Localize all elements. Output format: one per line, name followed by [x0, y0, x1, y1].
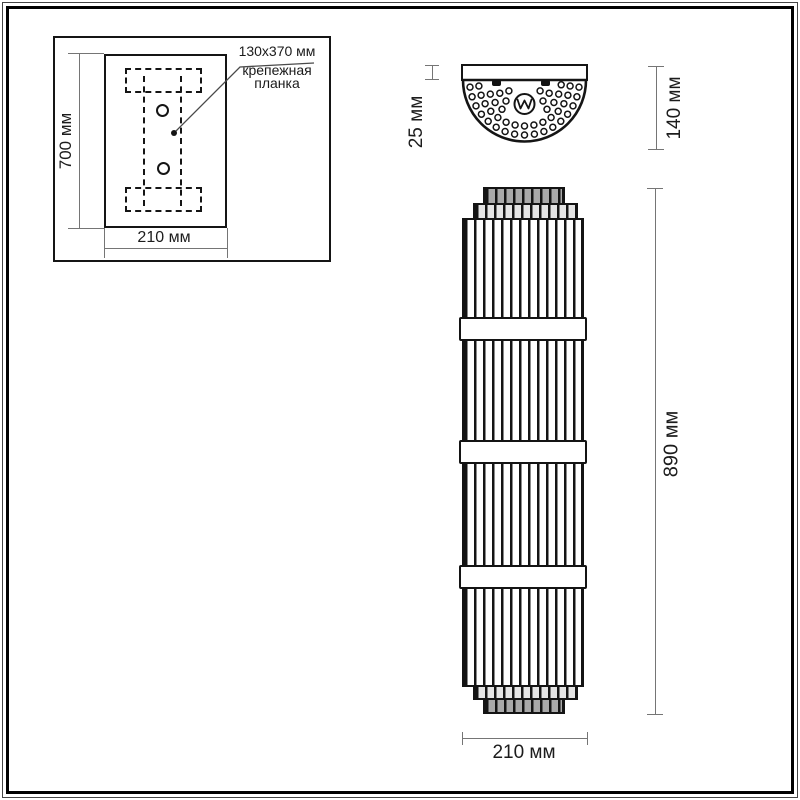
- lamp-height-label: 890 мм: [661, 411, 684, 477]
- rod-end-dot: [541, 129, 547, 135]
- rod-end-dot: [522, 123, 528, 129]
- rod-end-dot: [550, 124, 556, 130]
- rod-end-dot: [467, 84, 473, 90]
- rod-end-dot: [574, 94, 580, 100]
- rod-end-dot: [506, 88, 512, 94]
- rod-end-dot: [561, 101, 567, 107]
- dim-line-890: [655, 188, 656, 715]
- rod-end-dot: [565, 111, 571, 117]
- top-view-depth-label: 25 мм: [406, 96, 428, 149]
- decor-band-middle: [459, 440, 587, 464]
- screw-dot: [492, 80, 501, 86]
- rod-end-dot: [469, 94, 475, 100]
- lamp-symbol-icon: [515, 94, 535, 114]
- dim-tick: [648, 149, 664, 150]
- rod-end-dot: [476, 83, 482, 89]
- rod-end-dot: [531, 122, 537, 128]
- rod-end-dot: [478, 111, 484, 117]
- rod-end-dot: [512, 131, 518, 137]
- dim-tick: [648, 66, 664, 67]
- rod-end-dot: [499, 106, 505, 112]
- rod-end-dot: [546, 90, 552, 96]
- rod-end-dot: [482, 101, 488, 107]
- rod-end-dot: [551, 100, 557, 106]
- rod-end-dot: [503, 119, 509, 125]
- decor-band-bottom: [459, 565, 587, 589]
- rod-end-dot: [485, 118, 491, 124]
- rod-end-dot: [556, 91, 562, 97]
- lamp-width-label: 210 мм: [492, 742, 555, 764]
- rod-end-dot: [558, 118, 564, 124]
- rod-end-dot: [503, 98, 509, 104]
- rod-end-dot: [540, 98, 546, 104]
- technical-drawing: 130x370 мм крепежная планка 700 мм 210 м…: [0, 0, 800, 800]
- rod-end-dot: [488, 108, 494, 114]
- rod-end-dot: [555, 108, 561, 114]
- rod-end-dot: [548, 115, 554, 121]
- rod-end-dot: [540, 119, 546, 125]
- rod-end-dot: [567, 83, 573, 89]
- rod-end-dot: [522, 132, 528, 138]
- rod-end-dot: [531, 131, 537, 137]
- top-view-width-label: 140 мм: [664, 76, 686, 139]
- callout-leader-dot: [171, 130, 177, 136]
- wall-strip-top-view: [462, 65, 587, 80]
- rod-end-dot: [502, 129, 508, 135]
- callout-leader-line: [174, 63, 314, 133]
- rod-end-dot: [487, 91, 493, 97]
- rod-end-dot: [495, 115, 501, 121]
- rod-end-dot: [473, 103, 479, 109]
- dim-tick: [425, 79, 439, 80]
- dim-tick: [425, 65, 439, 66]
- rod-end-dot: [497, 90, 503, 96]
- rod-end-dot: [492, 100, 498, 106]
- dim-tick: [647, 188, 663, 189]
- rod-end-dot: [576, 84, 582, 90]
- rod-end-dot: [537, 88, 543, 94]
- dim-line-140: [656, 66, 657, 150]
- rod-end-dot: [570, 103, 576, 109]
- rod-end-dot: [544, 106, 550, 112]
- dim-line-210: [462, 738, 587, 739]
- dim-tick: [647, 714, 663, 715]
- dim-line-25: [432, 65, 433, 80]
- rod-end-dot: [478, 92, 484, 98]
- rod-end-dot: [493, 124, 499, 130]
- rod-end-dot: [565, 92, 571, 98]
- screw-dot: [541, 80, 550, 86]
- dim-tick: [587, 732, 588, 745]
- rod-end-dot: [512, 122, 518, 128]
- dim-tick: [462, 732, 463, 745]
- rod-end-dot: [558, 82, 564, 88]
- decor-band-top: [459, 317, 587, 341]
